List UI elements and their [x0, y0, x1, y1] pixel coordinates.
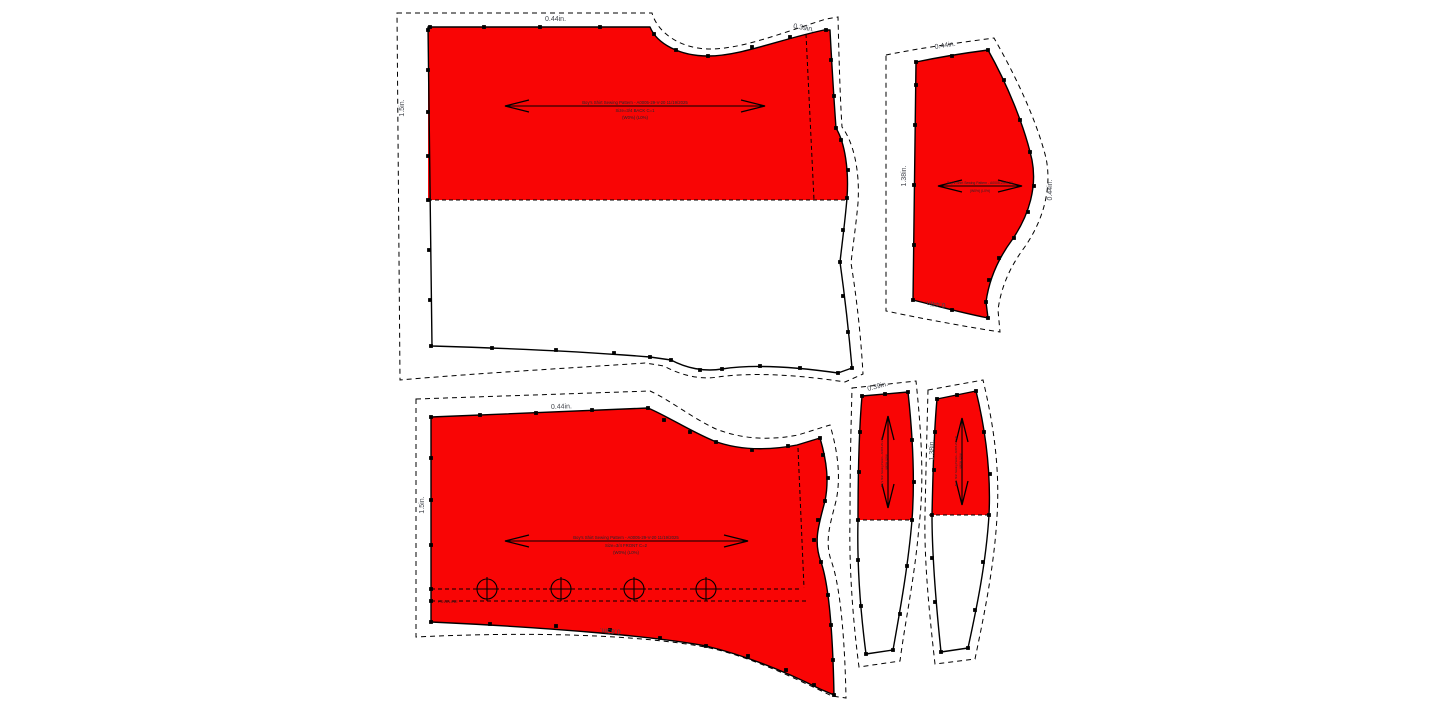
vertex-dot	[750, 45, 754, 49]
pattern-piece-sleeve: Boy's Shirt Sewing Pattern - A0005-29-V-…	[886, 38, 1054, 332]
back-title-line3: (W0%) (L0%)	[622, 115, 648, 120]
vertex-dot	[859, 604, 863, 608]
vertex-dot	[832, 94, 836, 98]
vertex-dot	[534, 411, 538, 415]
vertex-dot	[891, 648, 895, 652]
vertex-dot	[857, 470, 861, 474]
vertex-dot	[914, 60, 918, 64]
vertex-dot	[997, 256, 1001, 260]
vertex-dot	[720, 367, 724, 371]
vertex-dot	[845, 196, 849, 200]
vertex-dot	[612, 351, 616, 355]
vertex-dot	[864, 652, 868, 656]
vertex-dot	[1026, 210, 1030, 214]
vertex-dot	[910, 518, 914, 522]
vertex-dot	[911, 298, 915, 302]
vertex-dot	[704, 644, 708, 648]
vertex-dot	[426, 198, 430, 202]
vertex-dot	[784, 668, 788, 672]
vertex-dot	[910, 438, 914, 442]
back-dim-left: 1.5in.	[399, 99, 406, 116]
vertex-dot	[1018, 118, 1022, 122]
vertex-dot	[841, 294, 845, 298]
vertex-dot	[966, 646, 970, 650]
vertex-dot	[973, 608, 977, 612]
sleeve-title-line2: (W0%) (L0%)	[970, 189, 990, 193]
vertex-dot	[826, 476, 830, 480]
vertex-dot	[429, 498, 433, 502]
vertex-dot	[898, 612, 902, 616]
band-b-title-line2: (W0%) (L0%)	[959, 453, 963, 469]
vertex-dot	[950, 308, 954, 312]
vertex-dot	[826, 593, 830, 597]
vertex-dot	[986, 316, 990, 320]
pattern-drawing: Boy's Shirt Sewing Pattern - A0005-29-V-…	[0, 0, 1445, 706]
pattern-piece-band-a: Boy's Shirt Sewing Pattern - A0005-29-V-…	[850, 381, 922, 667]
vertex-dot	[429, 344, 433, 348]
vertex-dot	[832, 693, 836, 697]
vertex-dot	[930, 556, 934, 560]
vertex-dot	[648, 355, 652, 359]
vertex-dot	[834, 126, 838, 130]
vertex-dot	[912, 480, 916, 484]
vertex-dot	[746, 654, 750, 658]
vertex-dot	[932, 468, 936, 472]
front-title-line3: (W0%) (L0%)	[613, 550, 639, 555]
vertex-dot	[987, 278, 991, 282]
vertex-dot	[488, 622, 492, 626]
pattern-canvas: Boy's Shirt Sewing Pattern - A0005-29-V-…	[0, 0, 1445, 706]
pattern-piece-front: Boy's Shirt Sewing Pattern - A0005-29-V-…	[416, 391, 846, 698]
vertex-dot	[933, 430, 937, 434]
vertex-dot	[981, 560, 985, 564]
vertex-dot	[429, 620, 433, 624]
vertex-dot	[858, 430, 862, 434]
vertex-dot	[821, 453, 825, 457]
vertex-dot	[426, 110, 430, 114]
vertex-dot	[554, 348, 558, 352]
vertex-dot	[841, 228, 845, 232]
vertex-dot	[674, 48, 678, 52]
vertex-dot	[955, 393, 959, 397]
vertex-dot	[846, 330, 850, 334]
vertex-dot	[913, 123, 917, 127]
vertex-dot	[829, 623, 833, 627]
vertex-dot	[831, 658, 835, 662]
back-dim-top: 0.44in.	[545, 16, 566, 23]
vertex-dot	[429, 599, 433, 603]
vertex-dot	[987, 513, 991, 517]
vertex-dot	[788, 35, 792, 39]
vertex-dot	[988, 472, 992, 476]
back-piece-shape[interactable]	[428, 27, 848, 200]
vertex-dot	[986, 48, 990, 52]
vertex-dot	[824, 28, 828, 32]
vertex-dot	[658, 636, 662, 640]
vertex-dot	[818, 436, 822, 440]
vertex-dot	[933, 600, 937, 604]
vertex-dot	[930, 513, 934, 517]
back-dim-shoulder: 0.39in.	[793, 23, 815, 34]
vertex-dot	[823, 499, 827, 503]
vertex-dot	[669, 358, 673, 362]
vertex-dot	[935, 397, 939, 401]
vertex-dot	[836, 371, 840, 375]
pattern-piece-band-b: Boy's Shirt Sewing Pattern - A0005-29-V-…	[925, 380, 998, 664]
vertex-dot	[912, 183, 916, 187]
vertex-dot	[974, 389, 978, 393]
vertex-dot	[758, 364, 762, 368]
vertex-dot	[838, 260, 842, 264]
vertex-dot	[786, 444, 790, 448]
band-b-dim-left: 1.38in.	[929, 439, 936, 460]
vertex-dot	[939, 650, 943, 654]
vertex-dot	[829, 58, 833, 62]
band-a-title-line2: (W0%) (L0%)	[885, 454, 889, 470]
vertex-dot	[906, 390, 910, 394]
vertex-dot	[652, 32, 656, 36]
vertex-dot	[429, 456, 433, 460]
front-dim-left: 1.5in.	[419, 496, 426, 513]
vertex-dot	[429, 543, 433, 547]
vertex-dot	[426, 68, 430, 72]
vertex-dot	[912, 243, 916, 247]
vertex-dot	[478, 413, 482, 417]
vertex-dot	[750, 448, 754, 452]
vertex-dot	[839, 138, 843, 142]
vertex-dot	[698, 368, 702, 372]
vertex-dot	[950, 54, 954, 58]
vertex-dot	[490, 346, 494, 350]
vertex-dot	[883, 392, 887, 396]
vertex-dot	[482, 25, 486, 29]
vertex-dot	[905, 564, 909, 568]
vertex-dot	[850, 366, 854, 370]
back-title-line2: Size=3/4 BACK C=1	[616, 108, 656, 113]
vertex-dot	[798, 366, 802, 370]
band-b-title-line1: Boy's Shirt Sewing Pattern - A0005-29-V-…	[954, 435, 958, 486]
vertex-dot	[706, 54, 710, 58]
vertex-dot	[1032, 184, 1036, 188]
vertex-dot	[1028, 150, 1032, 154]
vertex-dot	[856, 518, 860, 522]
front-dim-bottom: 0.63in.	[599, 626, 621, 634]
band-a-dim-top: 0.39in.	[867, 381, 889, 393]
sleeve-dim-right: 0.44in.	[1047, 179, 1054, 200]
vertex-dot	[984, 300, 988, 304]
back-title-line1: Boy's Shirt Sewing Pattern - A0005-29-V-…	[582, 100, 688, 105]
front-title-line1: Boy's Shirt Sewing Pattern - A0005-29-V-…	[573, 535, 679, 540]
vertex-dot	[812, 538, 816, 542]
vertex-dot	[982, 430, 986, 434]
vertex-dot	[426, 154, 430, 158]
vertex-dot	[538, 25, 542, 29]
front-foldline-label: FOLDLINE	[438, 600, 458, 604]
band-a-title-line1: Boy's Shirt Sewing Pattern - A0005-29-V-…	[880, 436, 884, 487]
vertex-dot	[812, 683, 816, 687]
vertex-dot	[429, 587, 433, 591]
front-dim-top: 0.44in.	[551, 403, 572, 411]
vertex-dot	[816, 518, 820, 522]
vertex-dot	[914, 83, 918, 87]
vertex-dot	[590, 408, 594, 412]
vertex-dot	[856, 558, 860, 562]
vertex-dot	[662, 418, 666, 422]
vertex-dot	[554, 624, 558, 628]
vertex-dot	[688, 430, 692, 434]
vertex-dot	[427, 248, 431, 252]
vertex-dot	[860, 394, 864, 398]
vertex-dot	[428, 25, 432, 29]
vertex-dot	[846, 168, 850, 172]
vertex-dot	[819, 560, 823, 564]
sleeve-title-line1: Boy's Shirt Sewing Pattern - A0005-29-V-…	[947, 181, 1013, 185]
sleeve-dim-top: 0.44in.	[934, 41, 956, 51]
front-title-line2: Size=3/4 FRONT C=2	[605, 543, 648, 548]
vertex-dot	[429, 415, 433, 419]
vertex-dot	[1012, 236, 1016, 240]
vertex-dot	[646, 406, 650, 410]
vertex-dot	[714, 440, 718, 444]
pattern-piece-back: Boy's Shirt Sewing Pattern - A0005-29-V-…	[397, 13, 863, 382]
vertex-dot	[1002, 78, 1006, 82]
vertex-dot	[428, 298, 432, 302]
sleeve-dim-left: 1.38in.	[901, 165, 908, 186]
vertex-dot	[598, 25, 602, 29]
